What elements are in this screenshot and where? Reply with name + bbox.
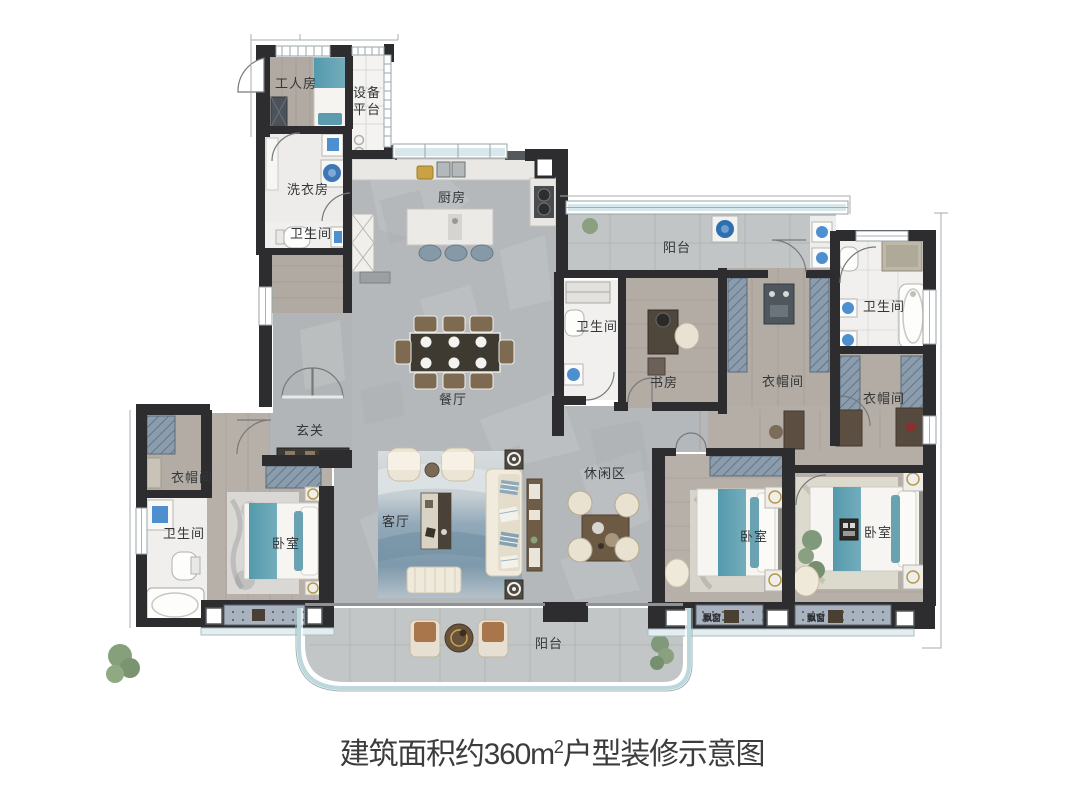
svg-text:卫生间: 卫生间 (863, 299, 905, 314)
svg-text:飘窗: 飘窗 (703, 612, 721, 623)
svg-text:洗衣房: 洗衣房 (287, 182, 329, 197)
svg-text:飘窗: 飘窗 (807, 612, 825, 623)
svg-text:厨房: 厨房 (438, 190, 466, 205)
svg-text:卧室: 卧室 (272, 536, 300, 551)
svg-text:阳台: 阳台 (535, 636, 563, 651)
svg-text:衣帽间: 衣帽间 (863, 391, 905, 406)
svg-text:阳台: 阳台 (663, 240, 691, 255)
svg-text:玄关: 玄关 (296, 423, 324, 438)
svg-text:餐厅: 餐厅 (439, 392, 467, 407)
svg-text:建筑面积约360m2户型装修示意图: 建筑面积约360m2户型装修示意图 (340, 737, 765, 771)
svg-text:衣帽间: 衣帽间 (171, 470, 213, 485)
svg-text:卧室: 卧室 (740, 529, 768, 544)
svg-text:卧室: 卧室 (864, 525, 892, 540)
svg-text:衣帽间: 衣帽间 (762, 374, 804, 389)
svg-text:卫生间: 卫生间 (576, 319, 618, 334)
svg-text:休闲区: 休闲区 (584, 466, 626, 481)
svg-text:工人房: 工人房 (275, 76, 317, 91)
svg-text:客厅: 客厅 (382, 514, 410, 529)
svg-text:卫生间: 卫生间 (163, 526, 205, 541)
svg-text:平台: 平台 (353, 102, 381, 117)
svg-text:卫生间: 卫生间 (290, 226, 332, 241)
svg-text:书房: 书房 (650, 375, 678, 390)
svg-text:设备: 设备 (353, 85, 381, 100)
